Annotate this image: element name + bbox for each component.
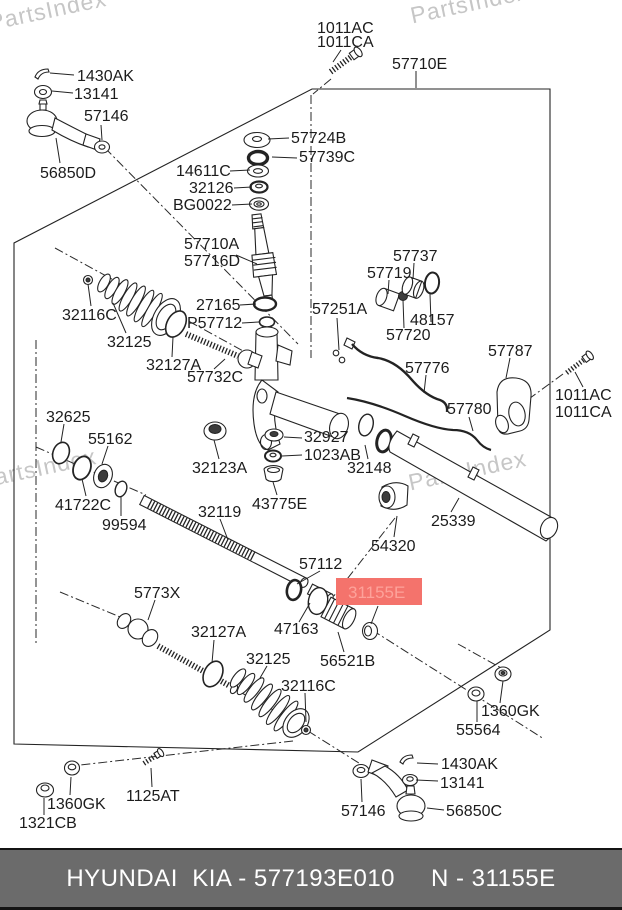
tube-clamp-drawing: [493, 378, 531, 435]
part-label-32125-lower[interactable]: 32125: [246, 651, 291, 668]
footer-bar: HYUNDAI KIA - 577193E010 N - 31155E: [0, 848, 622, 910]
part-label-5773x[interactable]: 5773X: [134, 585, 181, 602]
part-label-57787[interactable]: 57787: [488, 343, 533, 360]
part-label-1360gk-right[interactable]: 1360GK: [481, 703, 540, 720]
part-label-57776[interactable]: 57776: [405, 360, 450, 377]
part-label-32148[interactable]: 32148: [347, 460, 392, 477]
part-label-32127a-lower[interactable]: 32127A: [191, 624, 246, 641]
footer-part-number: HYUNDAI KIA - 577193E010: [66, 865, 395, 893]
seal-p57712-drawing: [260, 317, 275, 327]
part-label-57146-bottom[interactable]: 57146: [341, 803, 386, 820]
ring-27165-drawing: [254, 298, 276, 311]
part-label-47163[interactable]: 47163: [274, 621, 319, 638]
part-label-31155e[interactable]: 31155E: [348, 583, 405, 602]
part-label-32125-upper[interactable]: 32125: [107, 334, 152, 351]
part-label-p57712[interactable]: P57712: [187, 315, 242, 332]
part-label-57146-top[interactable]: 57146: [84, 108, 129, 125]
part-label-57251a[interactable]: 57251A: [312, 301, 367, 318]
part-label-57710e[interactable]: 57710E: [392, 56, 447, 73]
part-label-57716d[interactable]: 57716D: [184, 253, 240, 270]
part-label-41722c[interactable]: 41722C: [55, 497, 111, 514]
lower-boot-drawing: [199, 658, 314, 742]
part-label-32927[interactable]: 32927: [304, 429, 349, 446]
part-label-56521b[interactable]: 56521B: [320, 653, 375, 670]
part-label-1321cb[interactable]: 1321CB: [19, 815, 77, 832]
part-label-43775e[interactable]: 43775E: [252, 496, 307, 513]
part-label-57724b[interactable]: 57724B: [291, 130, 346, 147]
left-rings-drawing: [50, 440, 129, 498]
part-label-1011ca-top[interactable]: 1011CA: [317, 34, 374, 51]
part-label-57720[interactable]: 57720: [386, 327, 431, 344]
part-label-13141-top[interactable]: 13141: [74, 86, 119, 103]
part-label-13141-bottom[interactable]: 13141: [440, 775, 485, 792]
part-label-55564[interactable]: 55564: [456, 722, 501, 739]
part-label-32119[interactable]: 32119: [198, 504, 241, 521]
part-label-57739c[interactable]: 57739C: [299, 149, 355, 166]
mount-nuts-right-drawing: [468, 667, 511, 701]
part-label-25339[interactable]: 25339: [431, 513, 476, 530]
part-label-57710a[interactable]: 57710A: [184, 236, 239, 253]
part-label-32126[interactable]: 32126: [189, 180, 234, 197]
washer-stack-drawing: [244, 133, 270, 211]
pinion-shaft-drawing: [246, 213, 281, 303]
part-label-14611c[interactable]: 14611C: [176, 163, 231, 180]
footer-reference-number: N - 31155E: [431, 865, 556, 893]
part-label-32625[interactable]: 32625: [46, 409, 91, 426]
part-label-57780[interactable]: 57780: [447, 401, 492, 418]
parts-diagram-page: PartsIndex PartsIndex PartsIndex PartsIn…: [0, 0, 622, 910]
part-label-1011ac-right[interactable]: 1011AC: [555, 387, 612, 404]
highlighted-part[interactable]: 31155E: [336, 578, 422, 605]
part-label-1360gk-left[interactable]: 1360GK: [47, 796, 106, 813]
part-label-1125at[interactable]: 1125AT: [126, 788, 180, 805]
part-label-1430ak-top[interactable]: 1430AK: [77, 68, 134, 85]
part-label-57737[interactable]: 57737: [393, 248, 438, 265]
part-label-56850d[interactable]: 56850D: [40, 165, 96, 182]
part-label-1430ak-bottom[interactable]: 1430AK: [441, 756, 498, 773]
part-label-56850c[interactable]: 56850C: [446, 803, 502, 820]
part-label-54320[interactable]: 54320: [371, 538, 416, 555]
part-label-27165[interactable]: 27165: [196, 297, 241, 314]
rack-seals-drawing: [357, 413, 394, 454]
part-label-32116c-lower[interactable]: 32116C: [281, 678, 336, 695]
part-label-55162[interactable]: 55162: [88, 431, 133, 448]
part-label-32116c-upper[interactable]: 32116C: [62, 307, 117, 324]
part-label-57112[interactable]: 57112: [299, 556, 342, 573]
mount-bushing-drawing: [379, 483, 408, 510]
part-label-57719[interactable]: 57719: [367, 265, 412, 282]
part-label-1011ca-right[interactable]: 1011CA: [555, 404, 612, 421]
part-label-57732c[interactable]: 57732C: [187, 369, 243, 386]
part-label-32123a[interactable]: 32123A: [192, 460, 247, 477]
exploded-diagram: 31155E 1011AC 1011CA 57710E 1430AK 13141…: [0, 0, 622, 848]
part-label-99594[interactable]: 99594: [102, 517, 147, 534]
part-label-bg0022[interactable]: BG0022: [173, 197, 232, 214]
bolt-right-drawing: [564, 350, 595, 377]
